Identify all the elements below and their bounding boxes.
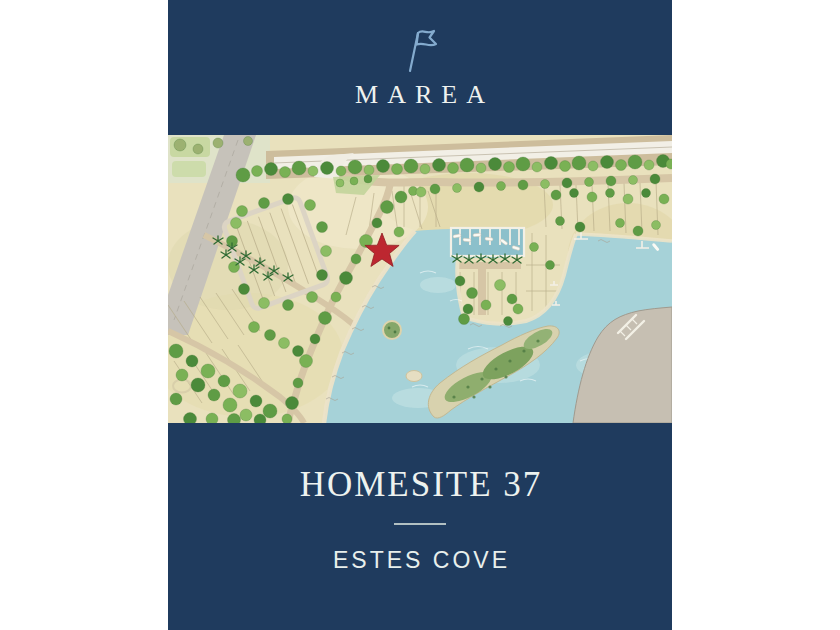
marketing-card: MAREA (0, 0, 840, 630)
site-map-illustration (168, 135, 672, 423)
flag-banner (417, 31, 436, 45)
brand-header: MAREA (168, 0, 672, 135)
community-name: ESTES COVE (333, 547, 510, 574)
brand-wordmark: MAREA (355, 80, 494, 110)
navy-card: MAREA (168, 0, 672, 630)
divider-line (394, 523, 446, 525)
pennant-flag-icon (398, 24, 442, 74)
site-map (168, 135, 672, 423)
marina (451, 228, 524, 256)
footer-lockup: HOMESITE 37 ESTES COVE (168, 423, 672, 630)
homesite-title: HOMESITE 37 (300, 465, 543, 505)
